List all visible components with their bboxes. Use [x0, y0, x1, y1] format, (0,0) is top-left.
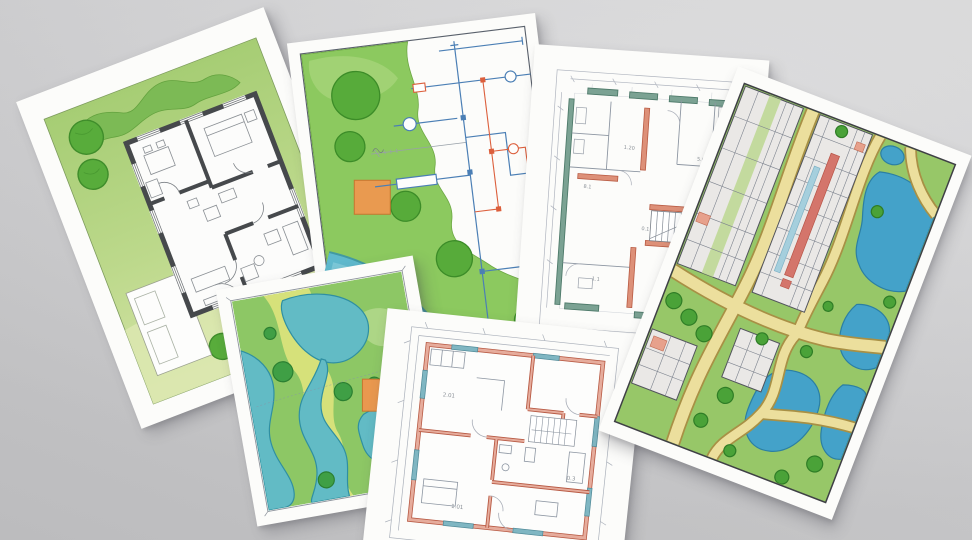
svg-text:0.1: 0.1: [641, 226, 650, 233]
svg-text:1.01: 1.01: [451, 504, 464, 511]
svg-text:1.20: 1.20: [623, 145, 635, 152]
svg-text:0.3: 0.3: [566, 476, 576, 483]
stairs: [528, 416, 576, 447]
photo-of-plan-sheets: 1.20 5.0 8.1 0.1 1.1 2.50: [0, 0, 972, 540]
svg-text:8.1: 8.1: [583, 184, 592, 191]
svg-text:1.1: 1.1: [592, 276, 601, 283]
svg-text:2.01: 2.01: [442, 392, 455, 399]
